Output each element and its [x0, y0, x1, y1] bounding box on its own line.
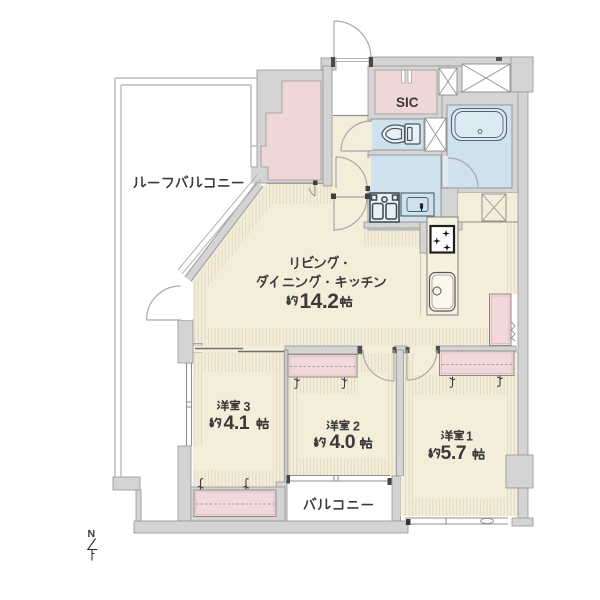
svg-text:5.7: 5.7 [441, 442, 467, 464]
svg-text:4.1: 4.1 [224, 412, 250, 434]
svg-text:N: N [88, 528, 96, 540]
svg-text:SIC: SIC [396, 95, 419, 110]
svg-text:1: 1 [466, 430, 473, 444]
svg-text:4.0: 4.0 [330, 431, 356, 453]
svg-text:14.2: 14.2 [300, 290, 339, 313]
